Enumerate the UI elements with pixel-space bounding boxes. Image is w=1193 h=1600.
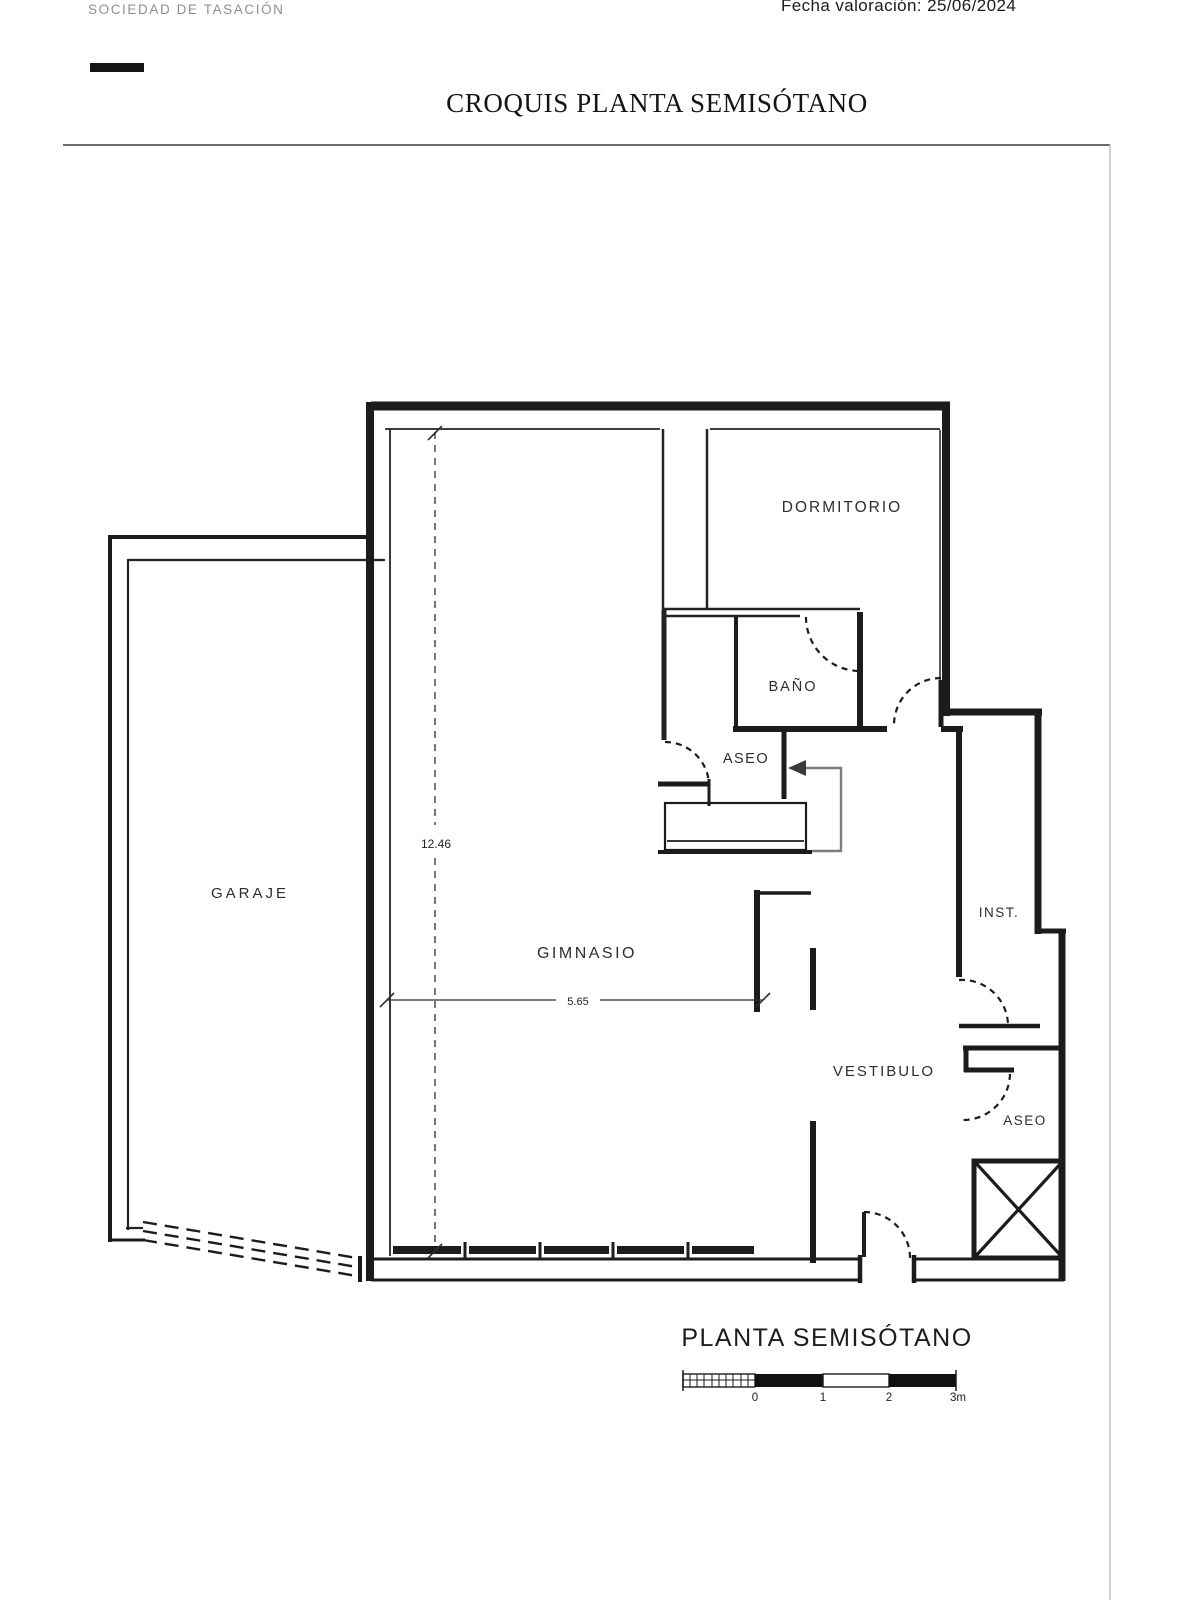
interior-walls-upper bbox=[658, 429, 963, 852]
bottom-wall-and-windows bbox=[371, 1212, 1064, 1283]
entrance-door bbox=[860, 1212, 914, 1283]
interior-walls-right bbox=[757, 731, 1064, 1263]
room-label-vestibulo: VESTIBULO bbox=[833, 1063, 935, 1080]
plan-caption: PLANTA SEMISÓTANO bbox=[681, 1323, 972, 1352]
bano-door-arc bbox=[806, 617, 860, 671]
page-title: CROQUIS PLANTA SEMISÓTANO bbox=[446, 88, 868, 118]
logo-bar bbox=[90, 63, 144, 72]
dimension-lines: 12.46 5.65 bbox=[380, 426, 770, 1258]
dim-height-label: 12.46 bbox=[421, 837, 451, 851]
scale-tick-3: 3m bbox=[950, 1392, 966, 1404]
room-label-aseo-lower: ASEO bbox=[1003, 1113, 1047, 1128]
scale-tick-1: 1 bbox=[820, 1392, 826, 1404]
elevator-shaft bbox=[974, 1161, 1063, 1258]
arrow-head-icon bbox=[788, 760, 806, 776]
scale-tick-0: 0 bbox=[752, 1392, 758, 1404]
room-labels: GARAJE GIMNASIO DORMITORIO BAÑO ASEO VES… bbox=[211, 499, 1047, 1128]
scanned-document-page: SOCIEDAD DE TASACIÓN Fecha valoración: 2… bbox=[0, 0, 1193, 1600]
window-band bbox=[393, 1242, 754, 1259]
floor-plan-canvas: SOCIEDAD DE TASACIÓN Fecha valoración: 2… bbox=[0, 0, 1193, 1600]
room-label-garaje: GARAJE bbox=[211, 885, 289, 902]
dim-width-label: 5.65 bbox=[567, 996, 588, 1008]
company-logo-text: SOCIEDAD DE TASACIÓN bbox=[88, 2, 285, 17]
entry-path-arrow bbox=[788, 760, 841, 851]
inst-door-arc bbox=[959, 980, 1008, 1025]
aseo-upper-door-arc bbox=[665, 742, 709, 786]
valuation-date: Fecha valoración: 25/06/2024 bbox=[781, 0, 1016, 15]
scale-bar: 0 1 2 3m bbox=[683, 1370, 966, 1404]
room-label-bano: BAÑO bbox=[768, 678, 817, 695]
mid-closet-walls bbox=[757, 890, 813, 1263]
room-label-gimnasio: GIMNASIO bbox=[537, 945, 637, 962]
garage-walls bbox=[108, 537, 385, 1282]
stair-block bbox=[658, 803, 812, 852]
scale-tick-2: 2 bbox=[886, 1392, 892, 1404]
room-label-inst: INST. bbox=[979, 905, 1020, 920]
room-label-dormitorio: DORMITORIO bbox=[782, 499, 902, 516]
room-label-aseo-upper: ASEO bbox=[723, 751, 769, 767]
hall-door-arc bbox=[894, 678, 941, 725]
